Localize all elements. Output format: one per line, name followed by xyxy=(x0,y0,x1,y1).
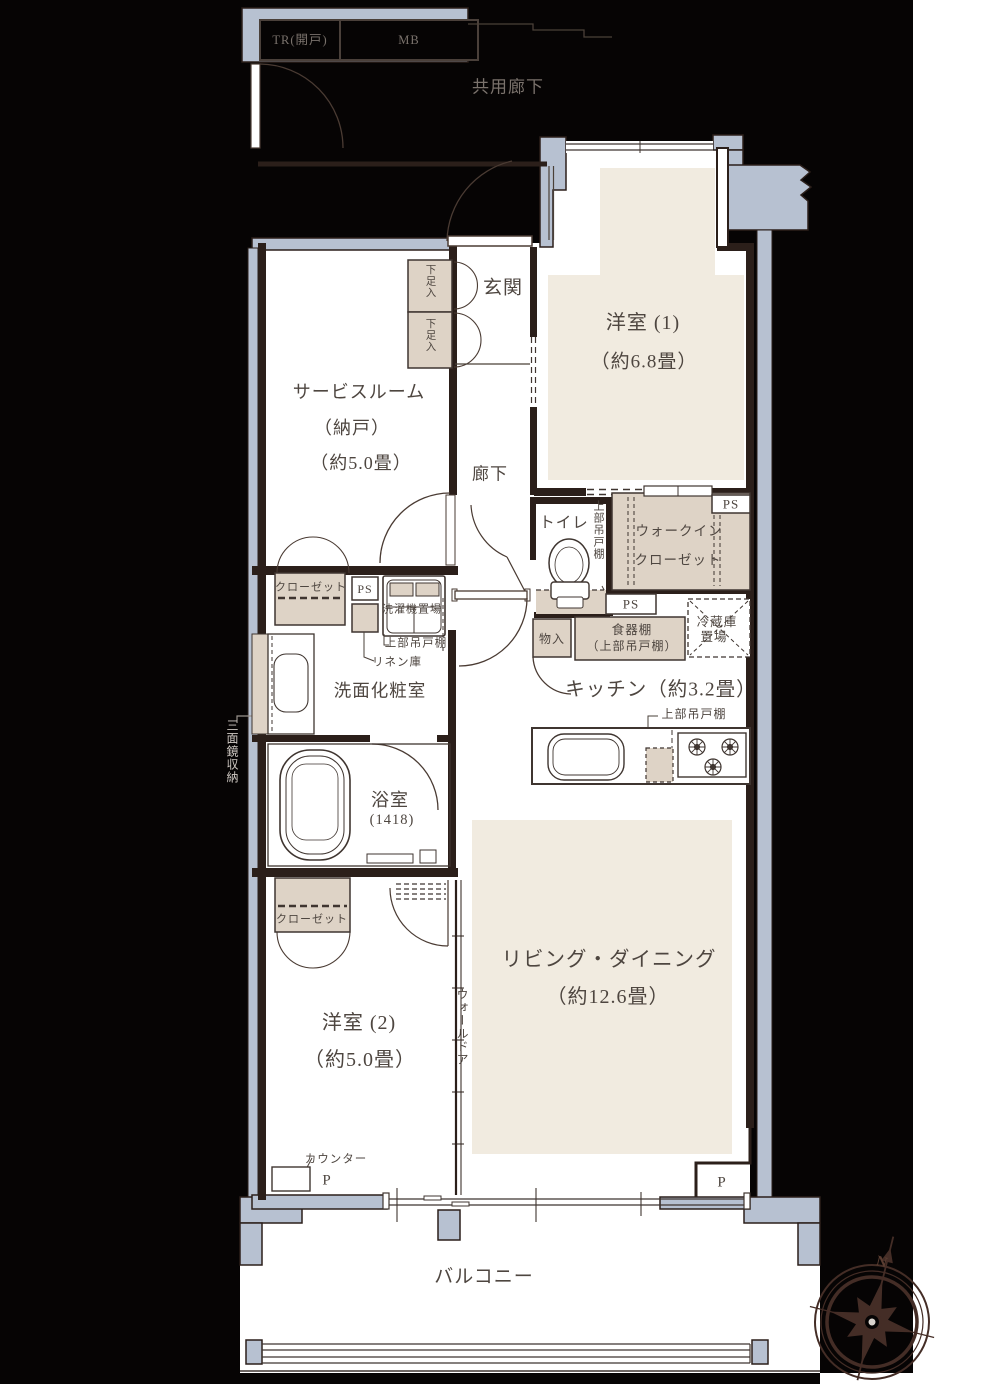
kitchen-label: キッチン（約3.2畳） xyxy=(565,680,756,700)
western1-name: 洋室 (1) xyxy=(606,313,680,333)
washer-upper-cabinet-label: 上部吊戸棚 xyxy=(385,638,448,650)
ps-label-mid: PS xyxy=(623,598,639,611)
cupboard-label-2: （上部吊戸棚） xyxy=(586,640,677,652)
pillar-label-right: P xyxy=(717,1176,726,1191)
washer-label: 洗濯機置場 xyxy=(382,605,442,616)
service-room-sub: （納戸） xyxy=(314,419,390,437)
genkan-label: 玄関 xyxy=(483,279,523,298)
hall-label: 廊下 xyxy=(472,466,508,483)
western2-size: （約5.0畳） xyxy=(304,1050,416,1070)
service-room-size: （約5.0畳） xyxy=(310,454,412,472)
wic-label-2: クローゼット xyxy=(635,553,722,567)
toilet-upper-cabinet-label: 上部吊戸棚 xyxy=(592,500,603,560)
meter-box-label: MB xyxy=(398,34,419,47)
washroom-label: 洗面化粧室 xyxy=(334,682,427,700)
cupboard-label-1: 食器棚 xyxy=(612,624,653,637)
living-size: （約12.6畳） xyxy=(547,987,670,1007)
vanity xyxy=(252,634,314,734)
trunk-label: TR(開戸) xyxy=(272,34,327,47)
counter-box xyxy=(272,1167,310,1191)
fridge-label-2: 置場 xyxy=(700,631,727,644)
western1-size: （約6.8畳） xyxy=(591,353,698,372)
balcony-label: バルコニー xyxy=(434,1268,534,1287)
counter-label: カウンター xyxy=(305,1154,368,1166)
small-storage-label: 物入 xyxy=(539,633,565,645)
ps-label-washer: PS xyxy=(357,583,372,595)
closet-upper-label: クローゼット xyxy=(275,583,347,594)
common-corridor-label: 共用廊下 xyxy=(472,79,544,96)
fridge-label-1: 冷蔵庫 xyxy=(697,616,738,629)
bath-size: (1418) xyxy=(370,813,415,828)
mirror-cabinet-label: 三面鏡収納 xyxy=(226,719,238,784)
living-name: リビング・ダイニング xyxy=(502,950,717,971)
linen-label: リネン庫 xyxy=(372,657,422,669)
toilet-label: トイレ xyxy=(539,515,589,531)
kitchen-counter xyxy=(532,728,750,784)
floorplan-linework xyxy=(0,0,1002,1384)
shoe-cabinet-label-1: 下足入 xyxy=(424,264,435,299)
shoe-cabinet-label-2: 下足入 xyxy=(424,318,435,353)
wic-label-1: ウォークイン xyxy=(636,524,723,538)
kitchen-upper-cabinet-label: 上部吊戸棚 xyxy=(661,708,726,720)
floor-plan: TR(開戸) MB 共用廊下 玄関 下足入 下足入 洋室 (1) （約6.8畳）… xyxy=(0,0,1002,1384)
bath-name: 浴室 xyxy=(371,791,409,809)
closet-lower-label: クローゼット xyxy=(276,915,348,926)
ps-label-top: PS xyxy=(723,498,739,511)
pillar-label-left: P xyxy=(322,1174,331,1189)
linen-box xyxy=(352,604,378,632)
service-room-name: サービスルーム xyxy=(293,383,425,401)
western2-name: 洋室 (2) xyxy=(322,1013,396,1033)
wall-door-label: ウォールドア xyxy=(456,988,468,1066)
